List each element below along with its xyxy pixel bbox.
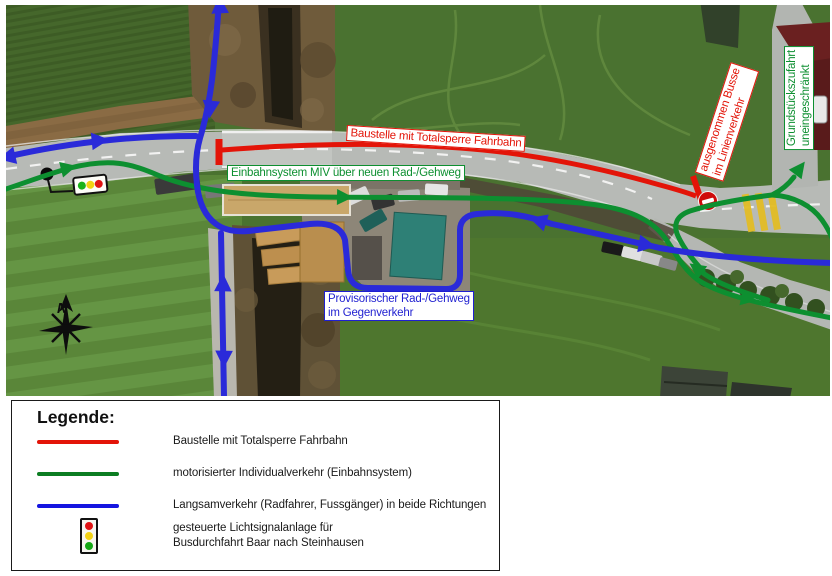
label-grundstueck-line1: Grundstückszufahrt: [786, 50, 798, 146]
legend-item-baustelle: Baustelle mit Totalsperre Fahrbahn: [12, 434, 499, 449]
label-provisorischer-line2: im Gegenverkehr: [328, 307, 413, 319]
legend-label: Baustelle mit Totalsperre Fahrbahn: [173, 434, 348, 449]
legend-label-line2: Busdurchfahrt Baar nach Steinhausen: [173, 537, 364, 549]
yellow-lamp: [85, 532, 93, 540]
label-einbahnsystem: Einbahnsystem MIV über neuen Rad-/Gehweg: [227, 165, 465, 181]
traffic-light-icon: [80, 518, 98, 554]
legend-item-langsamverkehr: Langsamverkehr (Radfahrer, Fussgänger) i…: [12, 498, 499, 513]
label-grundstueck-line2: uneingeschränkt: [800, 65, 812, 146]
legend-label: Langsamverkehr (Radfahrer, Fussgänger) i…: [173, 498, 486, 513]
red-line-swatch: [37, 440, 119, 444]
legend-item-lichtsignalanlage: gesteuerte Lichtsignalanlage für Busdurc…: [12, 518, 499, 554]
legend-box: Legende: Baustelle mit Totalsperre Fahrb…: [11, 400, 500, 571]
green-line-swatch: [37, 472, 119, 476]
legend-title: Legende:: [37, 407, 115, 428]
temporary-footbridge: [223, 185, 350, 215]
aerial-photo: N: [0, 0, 832, 398]
aerial-traffic-plan: N: [0, 0, 832, 398]
legend-label-line1: gesteuerte Lichtsignalanlage für: [173, 522, 333, 534]
label-provisorischer-line1: Provisorischer Rad-/Gehweg: [328, 293, 470, 305]
green-lamp: [85, 542, 93, 550]
compass-north-label: N: [57, 300, 69, 317]
blue-line-swatch: [37, 504, 119, 508]
legend-item-miv: motorisierter Individualverkehr (Einbahn…: [12, 466, 499, 481]
legend-label: gesteuerte Lichtsignalanlage für Busdurc…: [173, 521, 364, 551]
red-lamp: [85, 522, 93, 530]
legend-label: motorisierter Individualverkehr (Einbahn…: [173, 466, 412, 481]
label-provisorischer-radweg: Provisorischer Rad-/Gehweg im Gegenverke…: [324, 291, 474, 321]
label-grundstueckszufahrt: Grundstückszufahrt uneingeschränkt: [784, 46, 814, 150]
traffic-plan-page: { "map": { "labels": { "baustelle": "Bau…: [0, 0, 832, 576]
